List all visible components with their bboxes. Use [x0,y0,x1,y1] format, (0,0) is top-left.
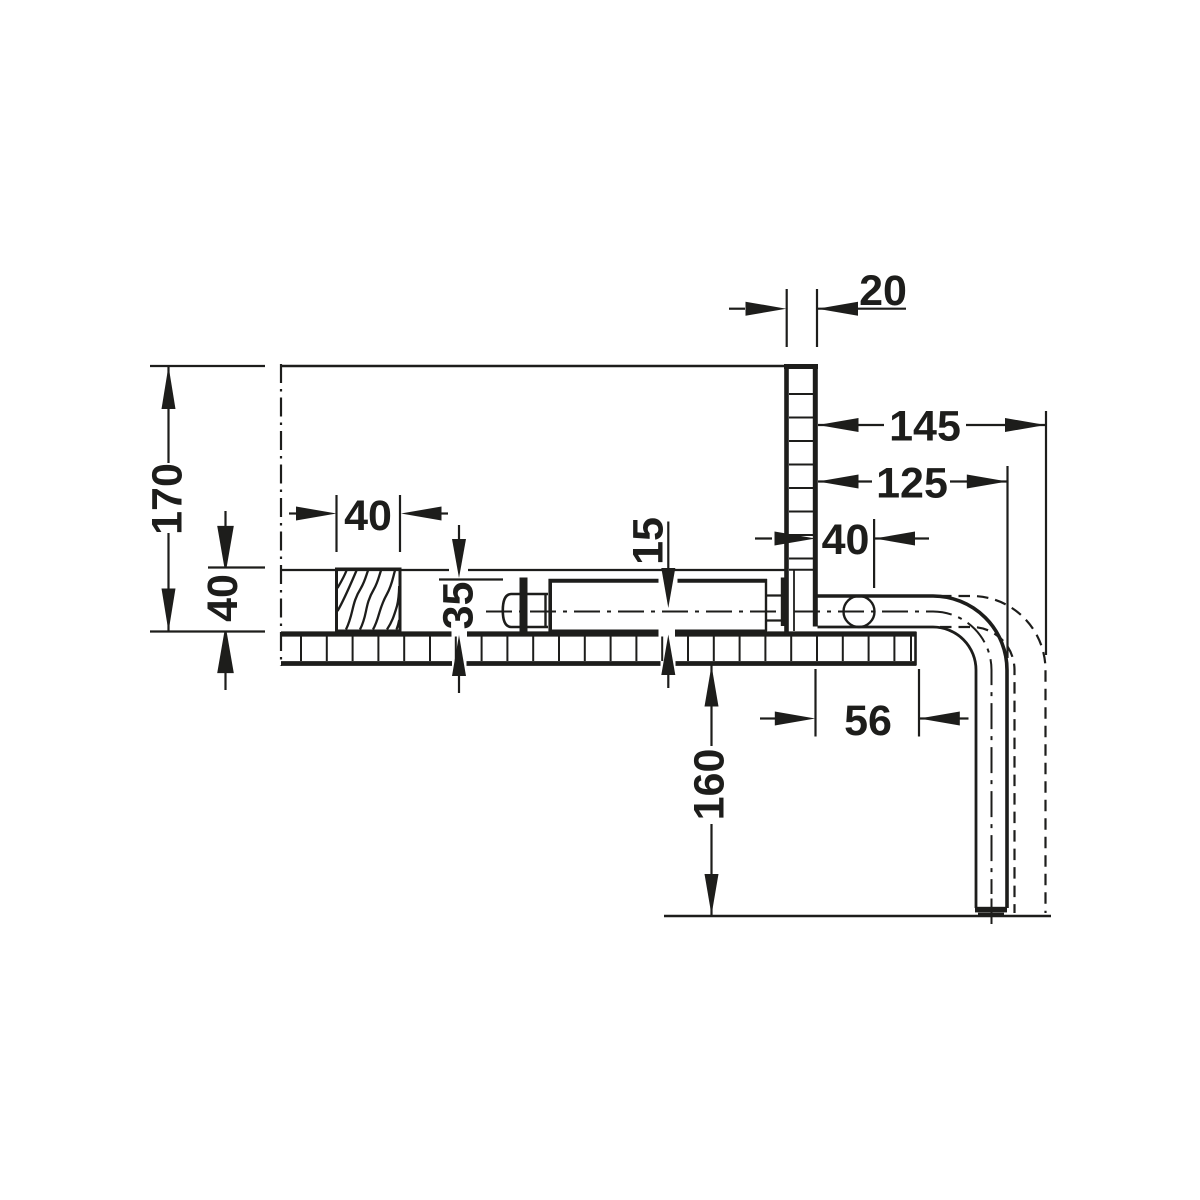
svg-text:56: 56 [844,697,892,745]
svg-text:40: 40 [199,574,247,622]
svg-text:40: 40 [344,492,392,540]
svg-text:170: 170 [144,463,192,535]
svg-text:145: 145 [889,403,961,451]
svg-text:125: 125 [876,460,948,508]
svg-text:35: 35 [435,582,483,630]
svg-text:15: 15 [625,517,673,565]
svg-text:20: 20 [859,267,907,315]
svg-text:40: 40 [822,516,870,564]
svg-text:160: 160 [686,749,734,821]
